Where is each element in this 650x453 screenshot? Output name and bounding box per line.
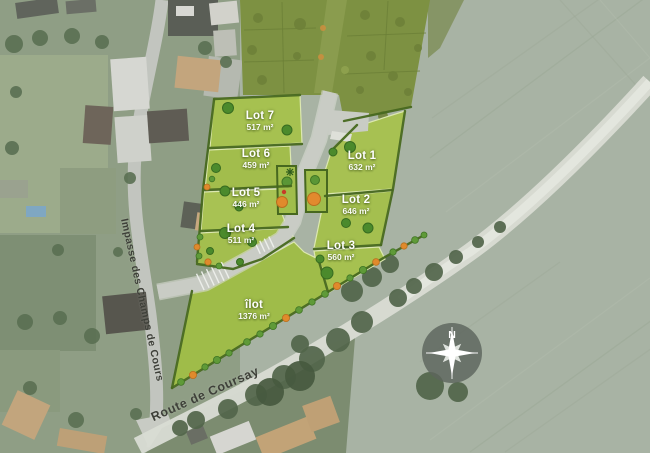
- island-tree-icon: [311, 176, 320, 185]
- compass-rose: N: [422, 323, 482, 383]
- planting-star-icon: [286, 168, 294, 176]
- lot-5-parcel: [201, 189, 287, 231]
- red-marker-icon: [282, 190, 286, 194]
- orange-tree-icon: [277, 197, 288, 208]
- lot-7-parcel: [210, 95, 302, 148]
- orange-tree-icon: [308, 193, 321, 206]
- map-canvas: N: [0, 0, 650, 453]
- pool: [26, 206, 46, 217]
- turnaround: [328, 110, 369, 135]
- compass-north-label: N: [448, 329, 456, 341]
- aerial-site-plan: N Lot 1 632 m² Lot 2 646 m² Lot 3 560 m²…: [0, 0, 650, 453]
